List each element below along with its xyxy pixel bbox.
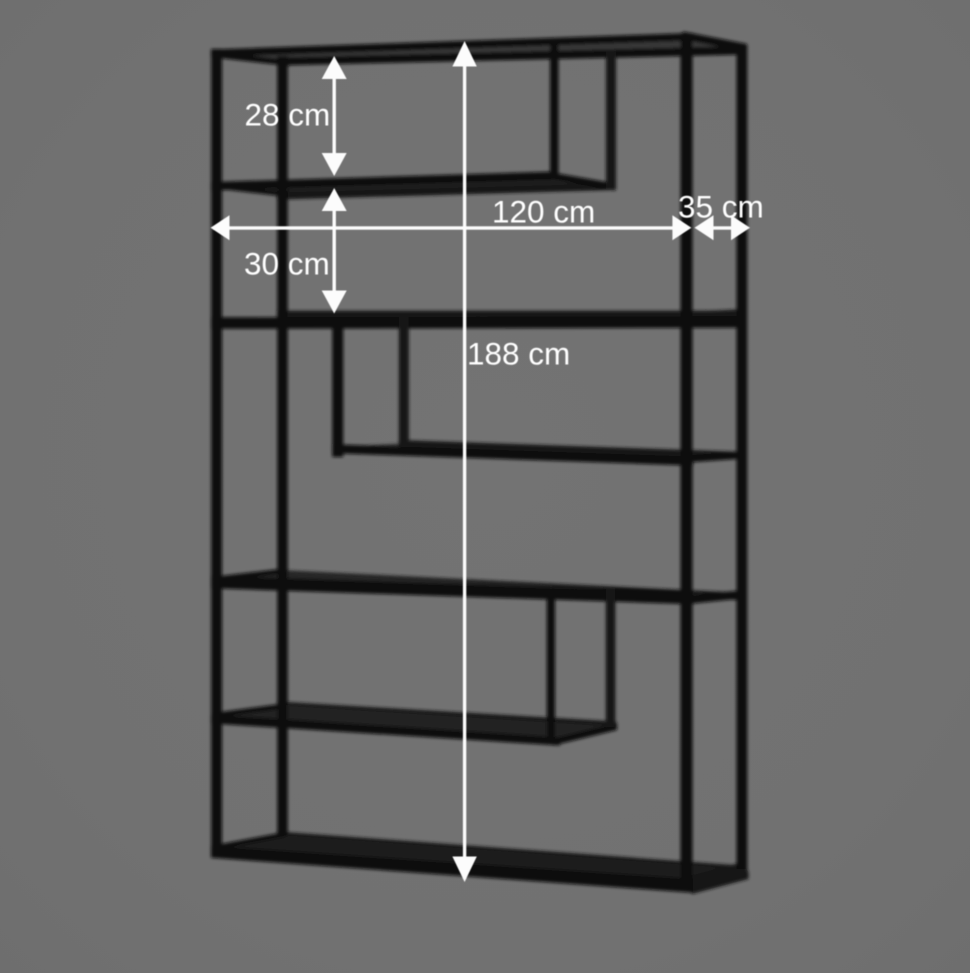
svg-text:35 cm: 35 cm bbox=[678, 189, 764, 225]
svg-text:120 cm: 120 cm bbox=[492, 194, 595, 230]
svg-text:30 cm: 30 cm bbox=[244, 246, 330, 282]
svg-text:188 cm: 188 cm bbox=[467, 336, 570, 372]
svg-text:28 cm: 28 cm bbox=[245, 97, 331, 133]
